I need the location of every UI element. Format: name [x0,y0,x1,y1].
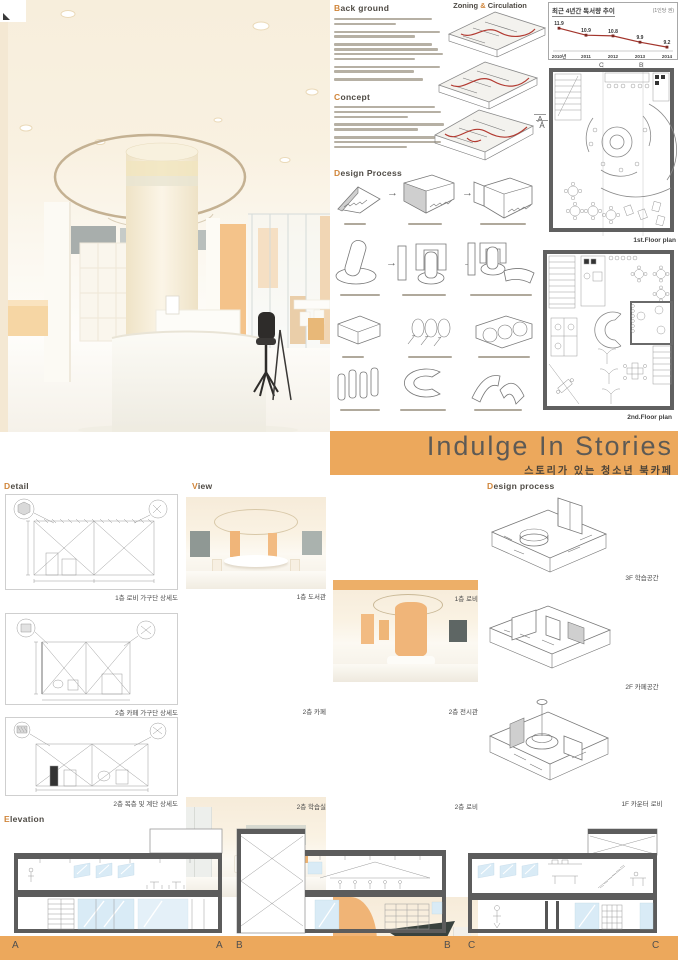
zoning-level-2 [439,62,537,109]
svg-text:C: C [599,62,604,69]
svg-text:10.8: 10.8 [608,29,618,35]
view-caption-4: 2층 전시관 [333,706,478,716]
poster-title: Indulge In Stories [330,431,673,461]
svg-text:9.9: 9.9 [637,35,644,41]
elevation-letter-a1: A [12,940,19,951]
sketch-box [334,312,384,351]
detail-drawing-3 [5,717,178,796]
zoning-stack-diagram [433,10,551,173]
plan2-branches [598,349,620,404]
design-process-top-heading: Design Process [334,168,402,178]
elevation-drawings [0,826,678,943]
sketch-c-ring [394,362,450,407]
sketch-stair-1 [334,179,384,222]
chart-plot-area: 11.92010년10.9201110.820129.920139.22014 [549,16,677,60]
svg-text:9.2: 9.2 [664,40,671,46]
axon-1f [484,690,614,799]
svg-text:2011: 2011 [581,54,591,59]
elevation-ground-band [0,936,678,960]
detail-caption-1: 1층 로비 가구단 상세도 [5,592,178,602]
design-process-right-heading: Design process [487,481,555,491]
view-image-library-1f [186,497,326,589]
sketch-curved-panels [468,366,528,411]
reading-trend-chart: 최근 4년간 독서량 추이 (1인당 권) 11.92010년10.920111… [548,2,678,60]
svg-text:2010년: 2010년 [552,53,566,60]
hero-interior-render [8,0,330,432]
plan2-tables-top [631,266,669,302]
zoning-level-3 [449,12,545,57]
poster-subtitle: 스토리가 있는 청소년 북카페 [330,462,673,477]
view-caption-2: 1층 로비 [333,593,478,603]
sketch-stair-2 [396,173,458,220]
svg-text:2013: 2013 [635,54,646,59]
sketch-stair-3 [470,174,536,225]
sketch-cylinder-3 [466,237,540,292]
plan1-tables [564,182,620,224]
detail-caption-3: 2층 복층 및 계단 상세도 [5,798,178,808]
fold-mark-icon [3,13,10,20]
view-heading: View [192,481,212,491]
detail-drawing-1 [5,494,178,590]
hero-render-art [8,0,330,432]
axon-3f [484,492,612,585]
section-a-drawing [14,829,222,933]
axon-2f-caption: 2F 카페공간 [607,681,677,691]
background-paragraphs [334,18,448,86]
view-caption-5: 2층 학습실 [186,801,326,811]
corner-tag [0,0,26,22]
first-floor-plan-caption: 1st.Floor plan [596,237,676,244]
presentation-board: Back ground Concept Design Process → → →… [0,0,678,960]
svg-text:B: B [639,62,643,69]
elevation-letter-b2: B [444,940,451,951]
plan1-marker-a: A [536,120,548,131]
section-c-drawing [468,829,657,933]
chart-unit-note: (1인당 권) [653,7,674,14]
sketch-discs-arrows [406,314,452,353]
first-floor-plan: C B [545,60,678,241]
sketch-cylinder-1 [332,236,380,291]
second-floor-plan-caption: 2nd.Floor plan [592,414,672,421]
detail-caption-2: 2층 카페 가구단 상세도 [5,707,178,717]
concept-heading: Concept [334,92,370,102]
view-caption-3: 2층 카페 [186,706,326,716]
axon-3f-caption: 3F 학습공간 [607,572,677,582]
view-caption-6: 2층 로비 [333,801,478,811]
detail-drawing-2 [5,613,178,705]
detail-heading: Detail [4,481,29,491]
zoning-heading: Zoning & Circulation [430,1,550,10]
background-heading: Back ground [334,3,389,13]
elevation-heading: Elevation [4,814,45,824]
axon-2f [484,594,616,675]
svg-text:2014: 2014 [662,54,673,59]
svg-text:10.9: 10.9 [581,28,591,34]
sketch-cylinder-2 [394,240,454,293]
svg-text:11.9: 11.9 [554,21,564,27]
elevation-letter-c1: C [468,940,475,951]
sketch-box-holes [472,312,536,355]
svg-text:2012: 2012 [608,54,619,59]
second-floor-plan [541,246,678,417]
zoning-level-1 [435,110,533,160]
left-edge-strip [0,0,8,432]
title-banner: Indulge In Stories 스토리가 있는 청소년 북카페 [330,431,678,475]
view-caption-1: 1층 도서관 [186,591,326,601]
section-b-drawing [237,829,446,933]
elevation-letter-b1: B [236,940,243,951]
elevation-letter-a2: A [216,940,223,951]
elevation-letter-c2: C [652,940,659,951]
sketch-slats [334,364,384,409]
axon-1f-caption: 1F 카운터 로비 [607,798,677,808]
